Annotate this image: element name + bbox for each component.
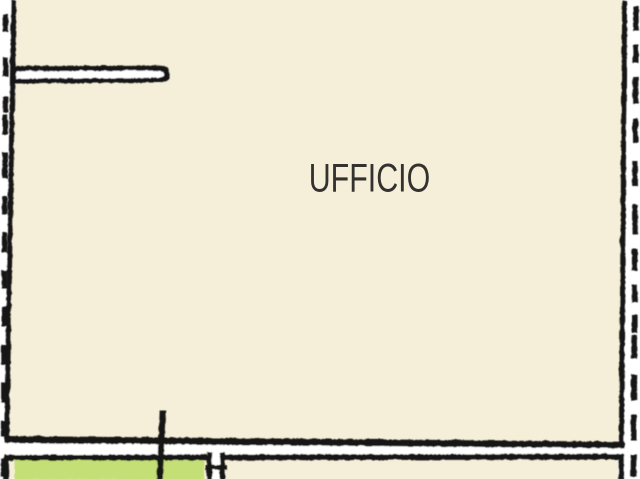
svg-text:UFFICIO: UFFICIO [309, 155, 431, 200]
